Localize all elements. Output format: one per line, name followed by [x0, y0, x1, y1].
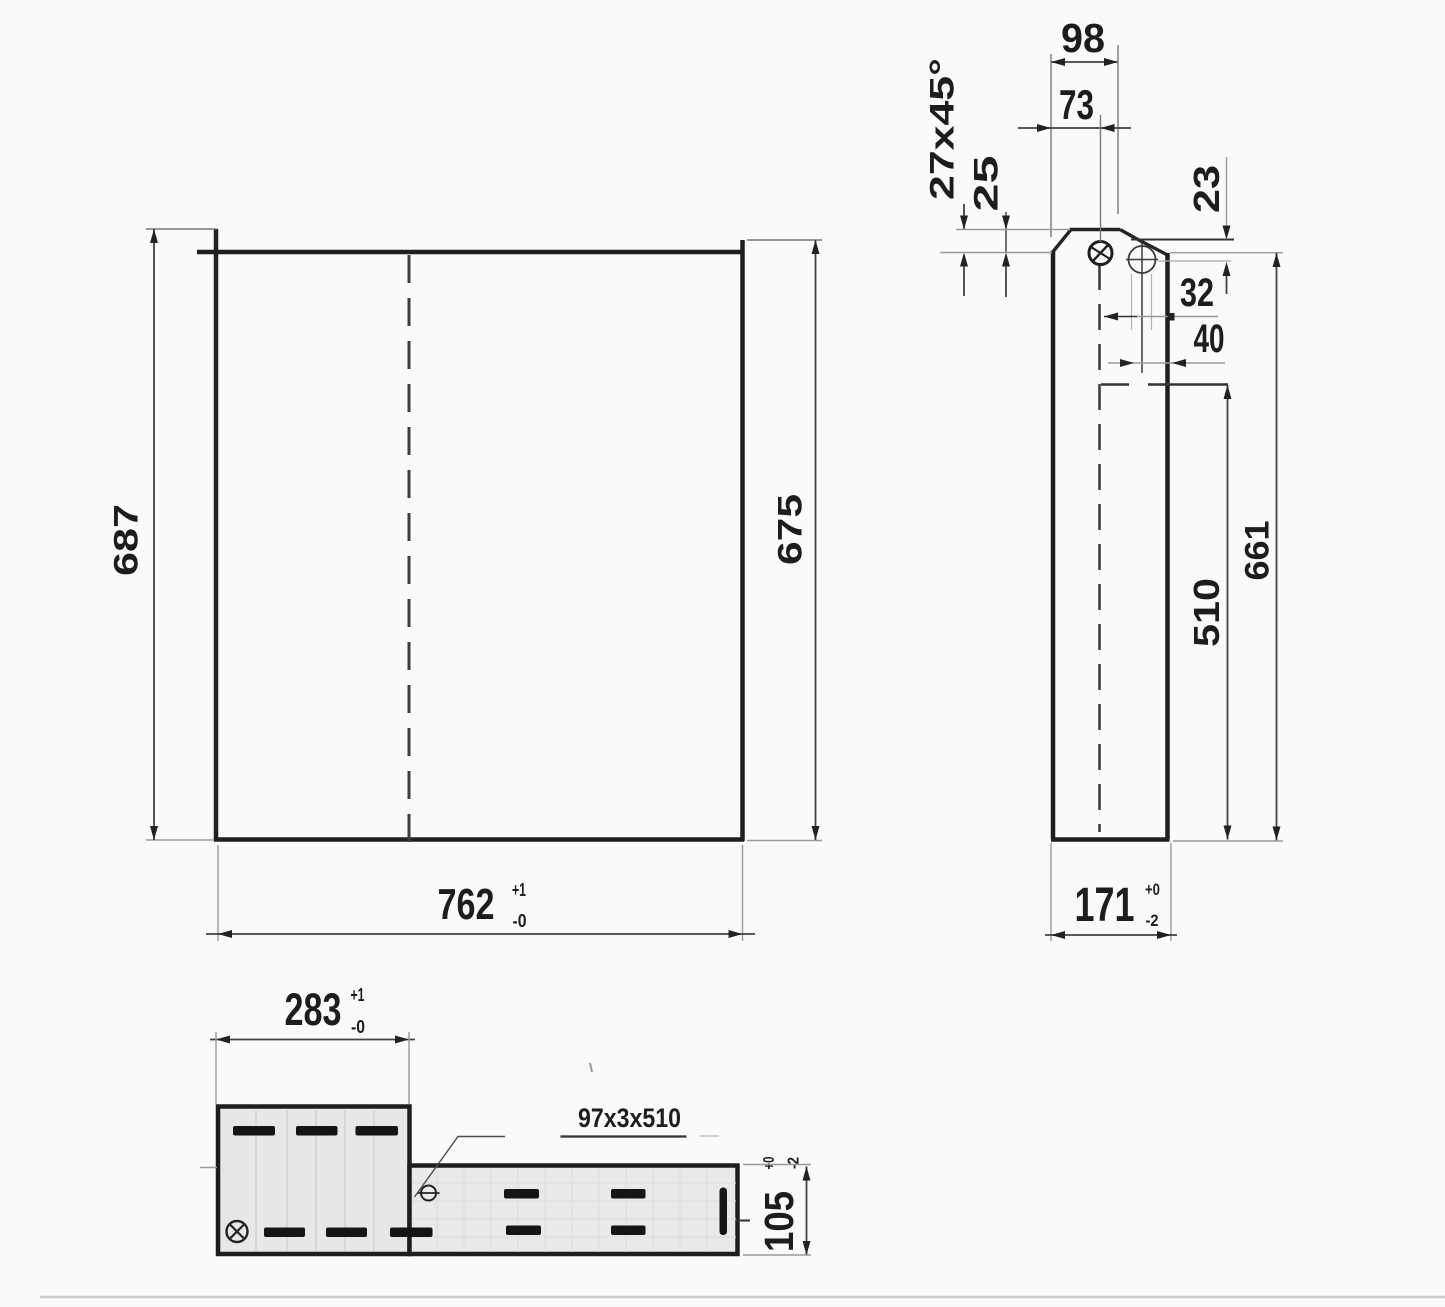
- svg-text:+1: +1: [351, 985, 365, 1005]
- svg-text:23: 23: [1186, 165, 1227, 213]
- svg-text:25: 25: [968, 156, 1006, 212]
- svg-text:+0: +0: [761, 1156, 778, 1169]
- svg-text:32: 32: [1180, 271, 1214, 315]
- svg-text:171: 171: [1075, 879, 1135, 932]
- svg-text:675: 675: [772, 494, 810, 565]
- svg-text:+0: +0: [1145, 880, 1160, 899]
- svg-text:-2: -2: [1146, 911, 1159, 930]
- svg-text:-2: -2: [786, 1157, 803, 1169]
- svg-text:510: 510: [1186, 578, 1227, 647]
- svg-text:762: 762: [438, 880, 495, 929]
- svg-text:661: 661: [1239, 521, 1277, 581]
- svg-text:+1: +1: [512, 880, 526, 900]
- svg-text:98: 98: [1061, 15, 1105, 61]
- svg-text:687: 687: [108, 504, 146, 576]
- svg-text:105: 105: [756, 1191, 802, 1252]
- svg-text:40: 40: [1194, 317, 1225, 361]
- svg-text:283: 283: [285, 984, 342, 1035]
- svg-text:-0: -0: [513, 911, 527, 931]
- svg-text:73: 73: [1059, 81, 1094, 128]
- svg-text:-0: -0: [351, 1017, 365, 1037]
- svg-text:27x45°: 27x45°: [924, 58, 962, 200]
- svg-text:97x3x510: 97x3x510: [578, 1103, 681, 1133]
